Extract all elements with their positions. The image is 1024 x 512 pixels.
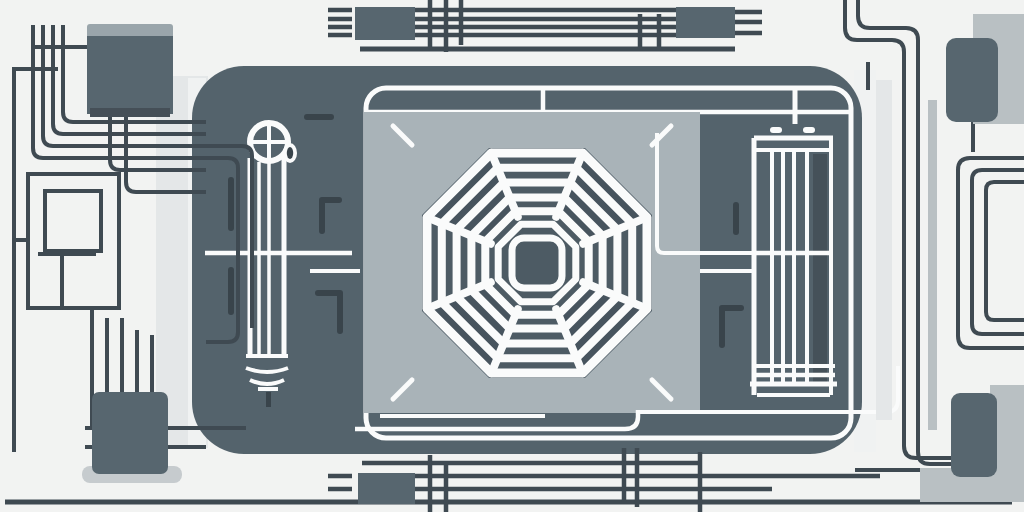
top-bus-connector-right (676, 7, 735, 38)
circuit-illustration: Stylized flat illustration of an electro… (0, 0, 1024, 512)
heatsink-dark-stripe (813, 154, 827, 382)
trace-loop-inner (45, 191, 101, 251)
bottom-bus-connector (358, 473, 415, 504)
chip-top-left (87, 36, 173, 114)
chip-bottom-right (951, 393, 997, 477)
heatsink-nub-right (803, 127, 815, 133)
tube-valve-inner (287, 147, 293, 159)
chip-top-right (946, 38, 998, 122)
heatsink-nub-left (770, 127, 782, 133)
trace-loop-outer (28, 174, 119, 308)
right-light-bar-1 (876, 80, 892, 420)
tube-lead (266, 392, 271, 407)
fan-grille (422, 148, 652, 378)
chip-top-left-edge (90, 108, 170, 117)
right-light-bar-2 (928, 100, 937, 430)
illustration-canvas: Stylized flat illustration of an electro… (0, 0, 1024, 512)
chip-bottom-left (92, 392, 168, 474)
top-bus-connector-left (355, 7, 415, 40)
